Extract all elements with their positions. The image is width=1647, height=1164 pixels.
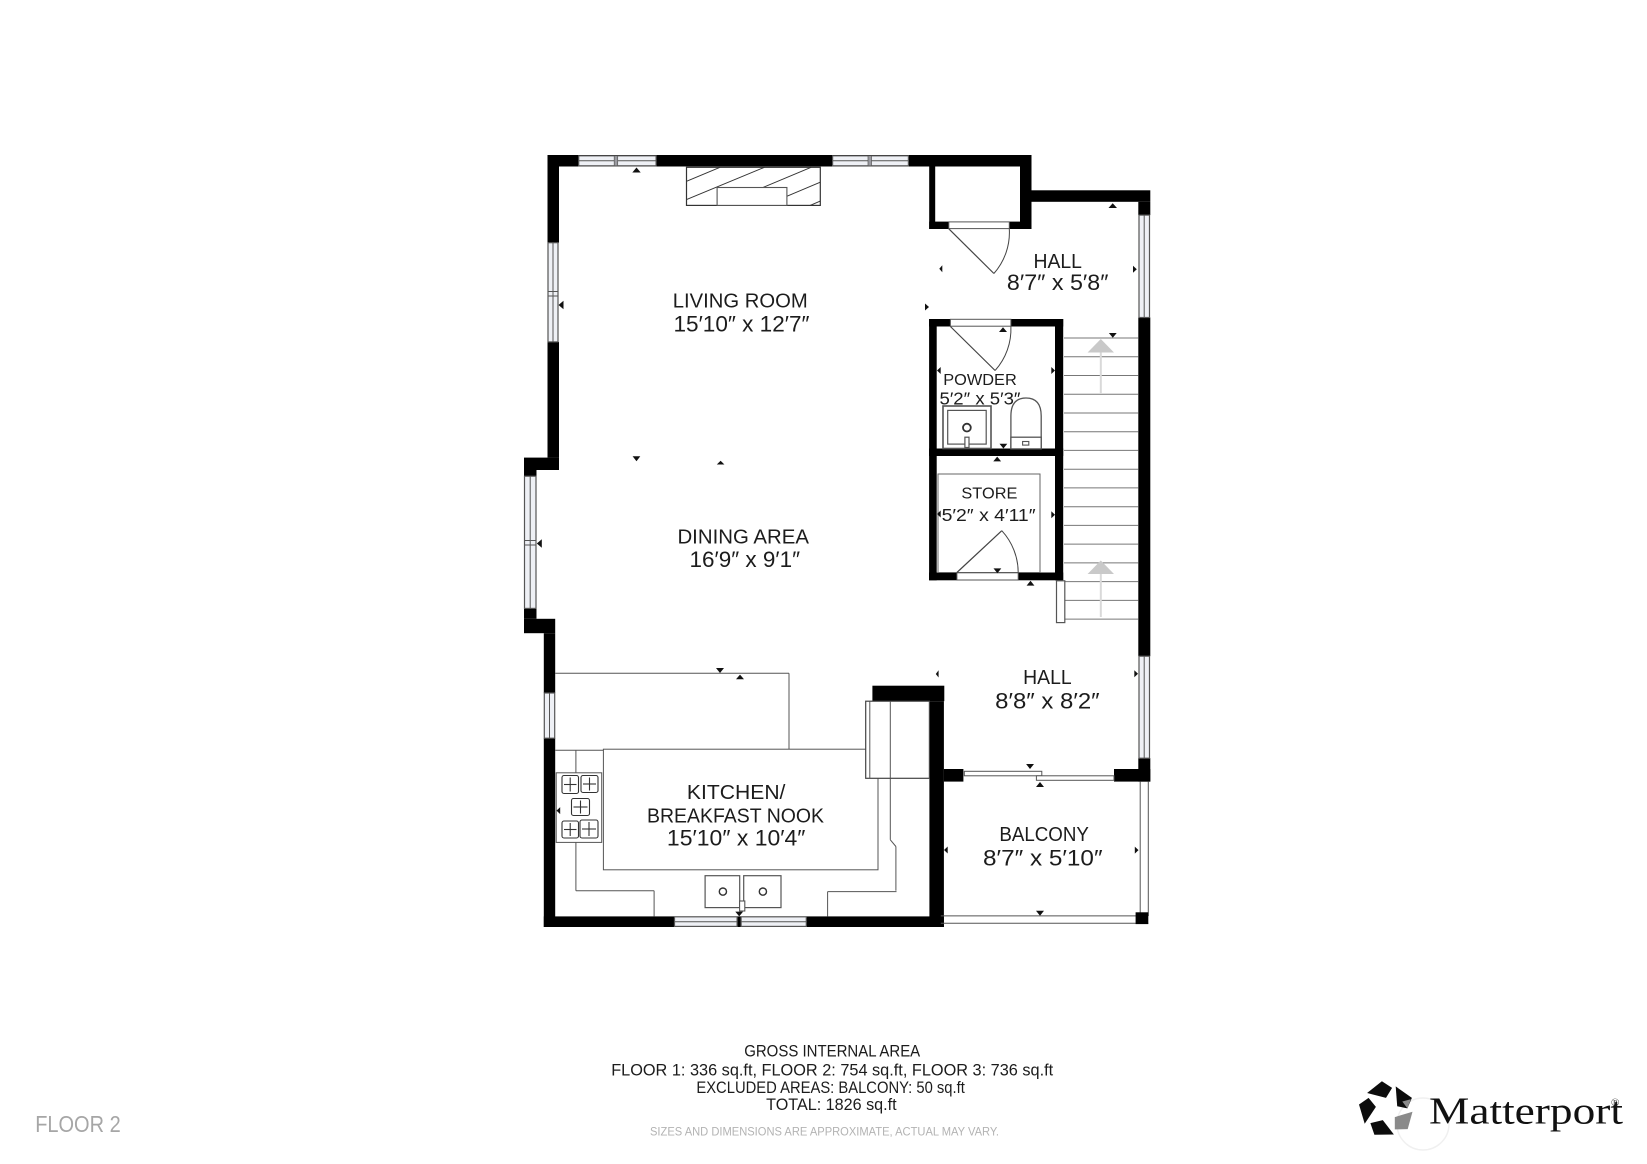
svg-text:5′2″ x 4′11″: 5′2″ x 4′11″: [942, 505, 1036, 525]
svg-text:FLOOR 1: 336 sq.ft, FLOOR 2: 7: FLOOR 1: 336 sq.ft, FLOOR 2: 754 sq.ft, …: [611, 1061, 1053, 1079]
svg-text:16′9″ x 9′1″: 16′9″ x 9′1″: [690, 547, 801, 572]
svg-text:SIZES AND DIMENSIONS ARE APPRO: SIZES AND DIMENSIONS ARE APPROXIMATE, AC…: [650, 1124, 999, 1138]
svg-text:8′7″ x 5′8″: 8′7″ x 5′8″: [1007, 270, 1109, 295]
svg-text:®: ®: [1611, 1097, 1619, 1109]
svg-text:BREAKFAST NOOK: BREAKFAST NOOK: [647, 805, 824, 828]
svg-text:KITCHEN/: KITCHEN/: [687, 781, 786, 804]
svg-text:FLOOR 2: FLOOR 2: [35, 1111, 121, 1137]
svg-text:5′2″ x 5′3″: 5′2″ x 5′3″: [940, 389, 1021, 409]
svg-text:LIVING ROOM: LIVING ROOM: [673, 289, 808, 312]
svg-text:BALCONY: BALCONY: [999, 823, 1089, 846]
svg-text:TOTAL: 1826 sq.ft: TOTAL: 1826 sq.ft: [766, 1096, 897, 1114]
svg-text:HALL: HALL: [1023, 666, 1072, 689]
svg-text:15′10″ x 12′7″: 15′10″ x 12′7″: [674, 311, 810, 336]
svg-text:Matterport: Matterport: [1429, 1091, 1624, 1133]
svg-text:8′7″ x 5′10″: 8′7″ x 5′10″: [983, 846, 1103, 871]
svg-text:DINING AREA: DINING AREA: [677, 526, 809, 549]
svg-text:STORE: STORE: [961, 486, 1017, 503]
svg-text:EXCLUDED AREAS: BALCONY: 50 sq: EXCLUDED AREAS: BALCONY: 50 sq.ft: [696, 1079, 965, 1097]
svg-text:8′8″ x 8′2″: 8′8″ x 8′2″: [995, 689, 1100, 714]
svg-text:GROSS INTERNAL AREA: GROSS INTERNAL AREA: [744, 1043, 920, 1061]
svg-text:POWDER: POWDER: [943, 372, 1017, 389]
svg-text:15′10″ x 10′4″: 15′10″ x 10′4″: [667, 825, 806, 850]
